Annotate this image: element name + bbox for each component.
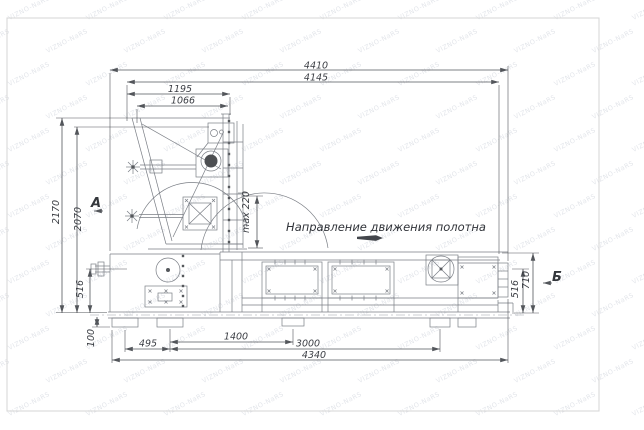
- flange-bolts: [182, 255, 184, 307]
- dim-top-second: 4145: [304, 73, 328, 84]
- dim-bottom-second: 1400: [224, 332, 248, 343]
- dimension-lines: [62, 70, 552, 360]
- technical-drawing: 4410 4145 1195 1066 2170 2070 516 100 49…: [0, 0, 644, 430]
- drive-box: [91, 252, 220, 312]
- handwheel-upper: [126, 160, 140, 174]
- dim-top-fourth: 1066: [171, 96, 195, 107]
- access-panel: [145, 286, 187, 307]
- handwheel-lower: [125, 209, 139, 223]
- dim-bottom-third: 3000: [296, 339, 320, 350]
- dim-bottom-overall: 4340: [302, 350, 326, 361]
- hinge-circle: [211, 130, 218, 137]
- press-box: [183, 197, 217, 230]
- shaft-bearing: [150, 160, 162, 173]
- base-rail: [108, 312, 510, 327]
- dim-left-shaft: 516: [75, 280, 86, 298]
- dimension-labels: 4410 4145 1195 1066 2170 2070 516 100 49…: [51, 61, 532, 362]
- dim-max-gap: max 220: [241, 191, 252, 233]
- right-protrusion: [498, 263, 508, 297]
- dim-bottom-first: 495: [139, 339, 157, 350]
- end-frame-box: [458, 257, 513, 312]
- view-label-b: Б: [552, 270, 562, 285]
- dim-left-second: 2070: [73, 207, 84, 231]
- dim-right-overall: 710: [521, 271, 532, 289]
- conveyor-panel: [328, 260, 394, 301]
- motor-pulley-disc: [205, 155, 218, 168]
- dim-top-third: 1195: [168, 84, 192, 95]
- right-step: [498, 300, 513, 312]
- dim-left-base: 100: [86, 329, 97, 347]
- dim-top-overall: 4410: [304, 61, 328, 72]
- tail-pulley-box: [426, 255, 458, 285]
- dim-right-height: 516: [510, 280, 521, 298]
- conveyor-panel: [262, 260, 322, 301]
- drawing-sheet: VIZNO-NaRSVIZNO-NaRSVIZNO-NaRSVIZNO-NaRS…: [0, 0, 644, 430]
- direction-arrow-icon: [357, 235, 383, 241]
- dim-left-overall: 2170: [51, 200, 62, 224]
- extension-lines: [56, 66, 539, 363]
- view-label-a: А: [90, 196, 101, 211]
- direction-note: Направление движения полотна: [286, 220, 486, 234]
